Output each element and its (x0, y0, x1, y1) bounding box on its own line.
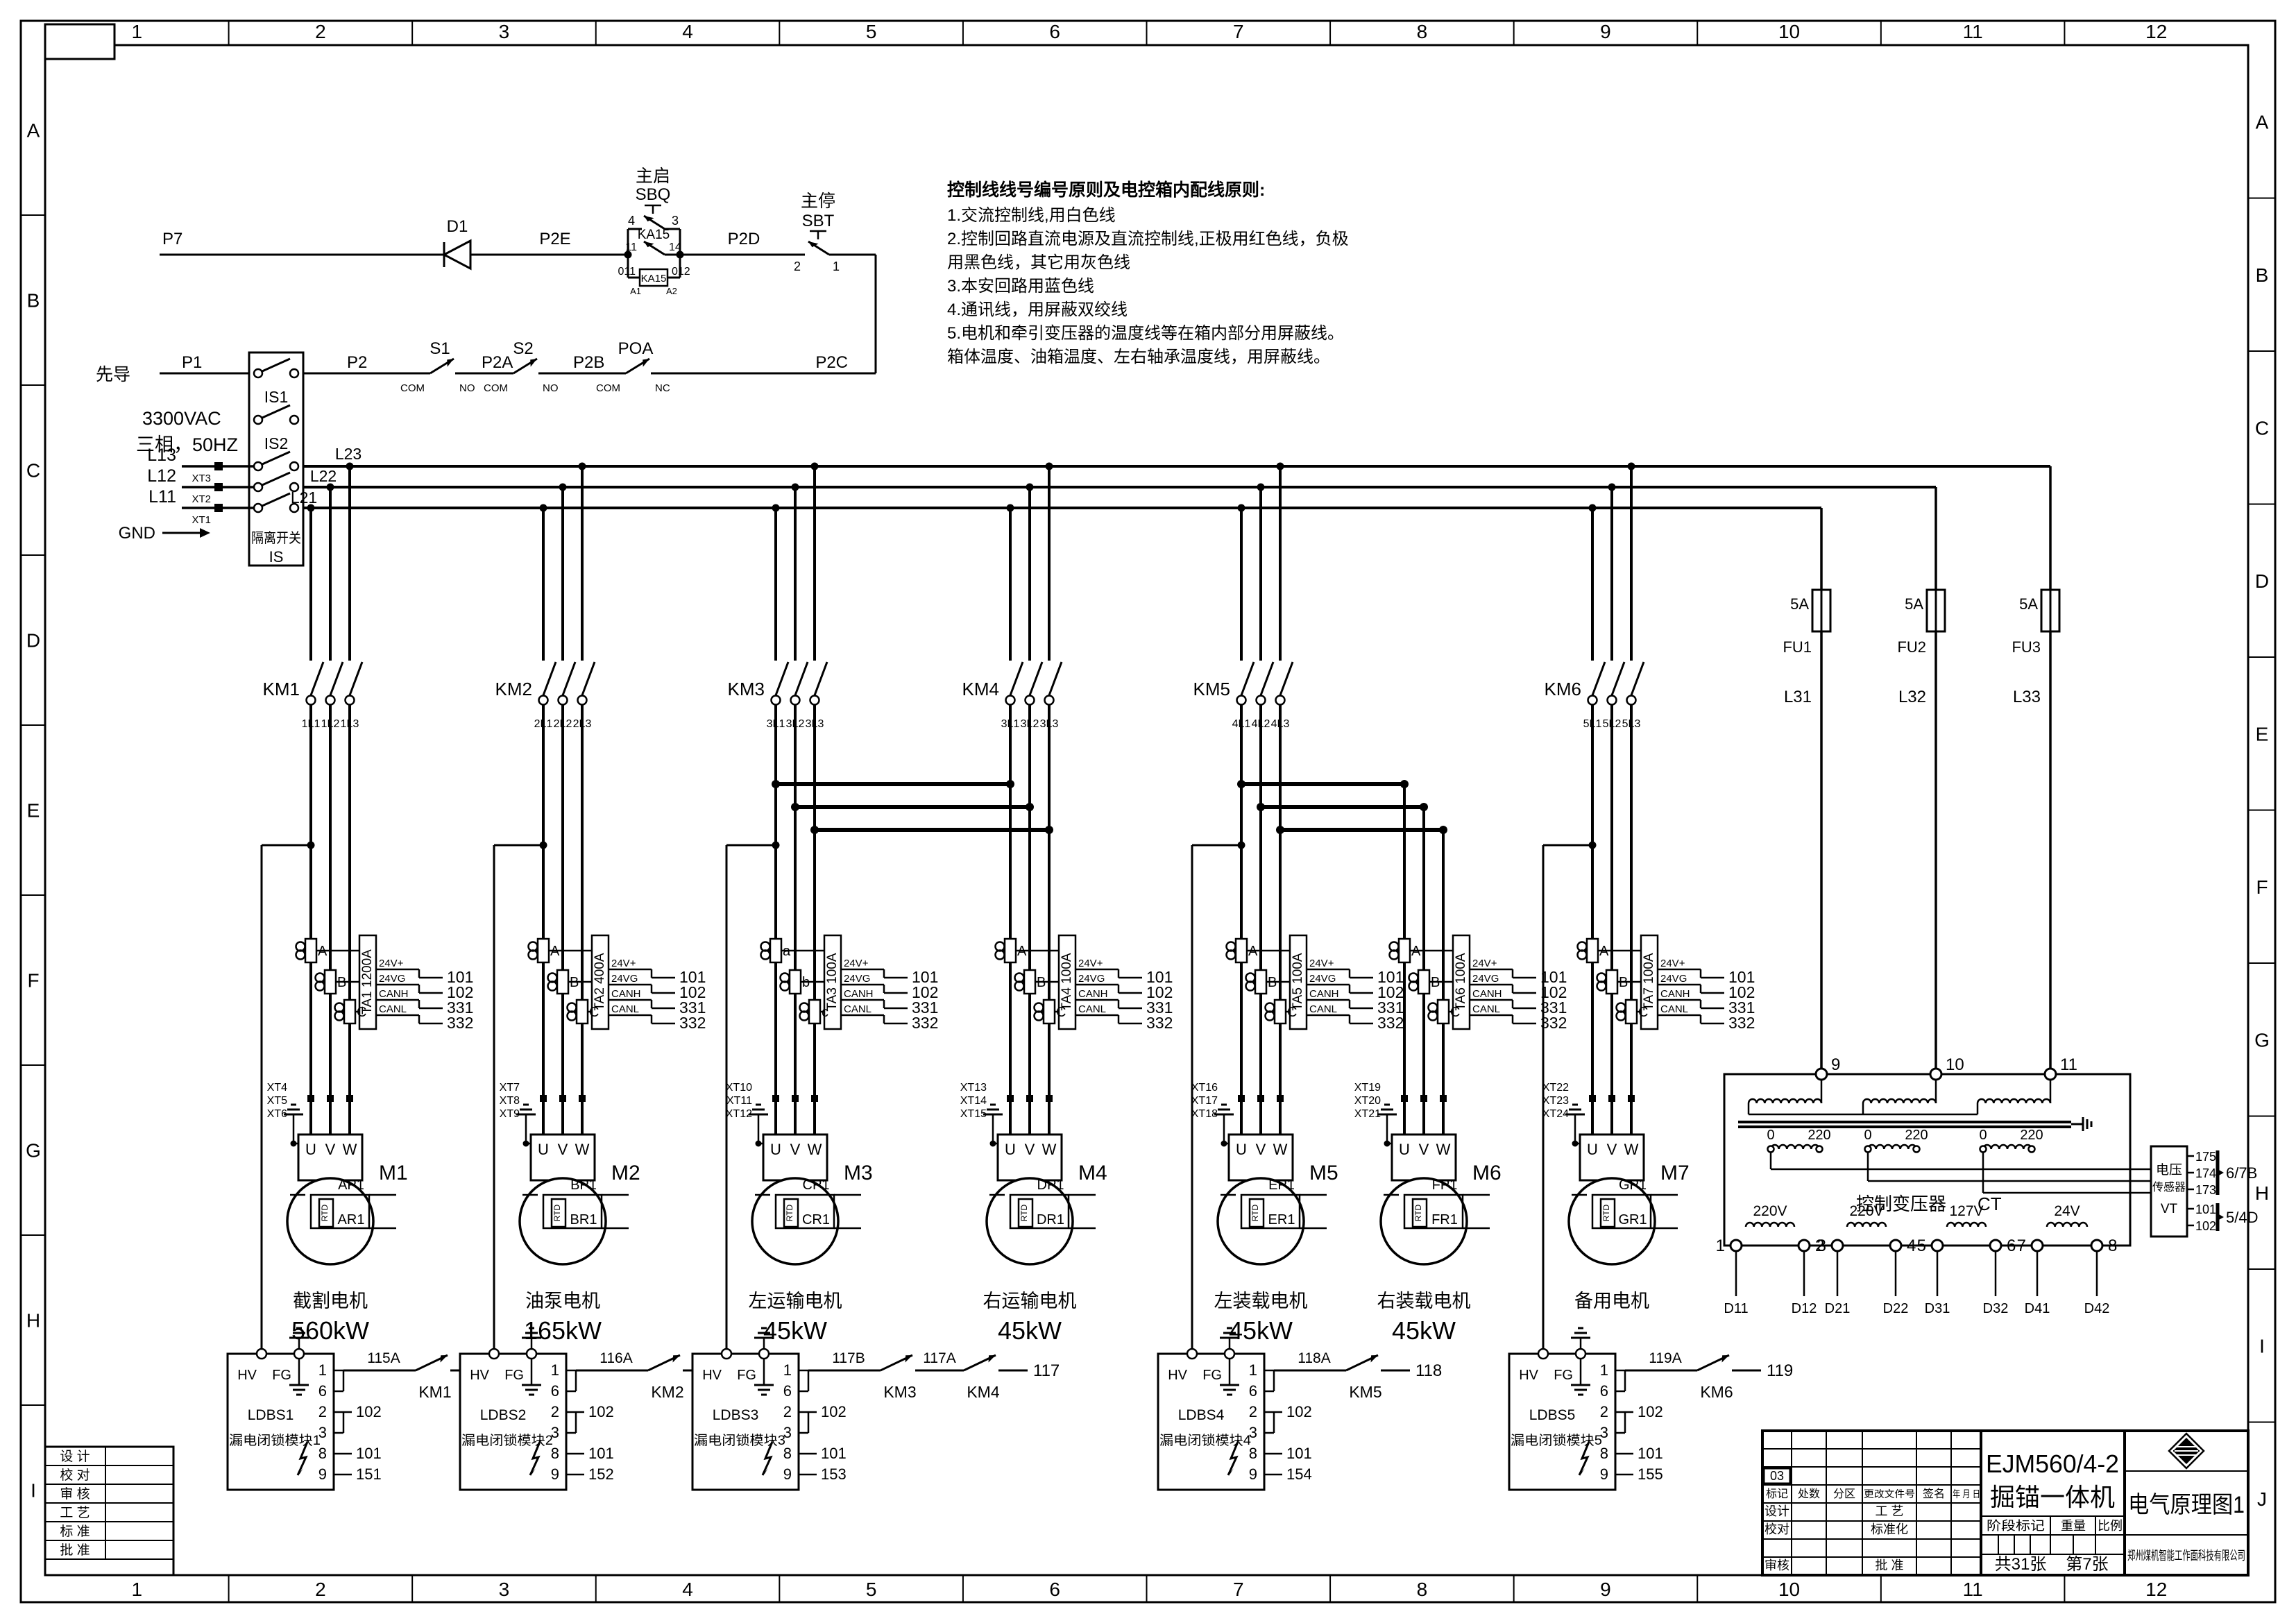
ct-out-wire: D41 (2025, 1301, 2050, 1316)
interlock-wire-in: 119A (1649, 1350, 1682, 1366)
ta-pin-label: 24V+ (1309, 958, 1334, 969)
ta-wire-label: 332 (1540, 1014, 1567, 1032)
ta-pin-label: 24VG (611, 973, 638, 985)
switch-id: POA (618, 339, 654, 358)
label-control-s1-r: NO (459, 382, 475, 394)
ta-label: TA6 100A (1454, 953, 1468, 1010)
label-control-iso-is1: IS1 (264, 388, 289, 406)
ldbs-pin-number: 3 (1600, 1424, 1608, 1441)
motor-winding-label: DP1 (1037, 1178, 1064, 1193)
toroid-label: b (802, 975, 810, 990)
ta-label: TA5 100A (1291, 953, 1305, 1010)
ldbs-pin-number: 6 (551, 1382, 559, 1400)
phase-wire-label: 3L2 (1021, 718, 1039, 730)
label-control-poa-r: NC (655, 382, 670, 394)
rtd-glyph-label: RTD (552, 1204, 562, 1221)
row-ref-left: H (26, 1310, 40, 1332)
phase-wire-label: 2L2 (554, 718, 572, 730)
supply-terminal-label: XT1 (192, 514, 211, 526)
label-control-ka15-wr: 012 (672, 266, 690, 278)
motor-winding-label: BP1 (570, 1178, 597, 1193)
product-name: 掘锚一体机 (1990, 1483, 2115, 1511)
interlock-wire-mid: 117A (923, 1350, 956, 1366)
xt-terminal-label: XT8 (500, 1095, 520, 1107)
label-control-iso-id: IS (269, 548, 284, 566)
phase-wire-label: 3L2 (786, 718, 805, 730)
ldbs-hv-label: HV (237, 1368, 257, 1383)
xt-terminal-label: XT21 (1354, 1108, 1381, 1120)
ldbs-pin-number: 2 (551, 1403, 559, 1420)
sheet-count: 共31张 (1995, 1555, 2047, 1574)
col-ref-top: 1 (132, 21, 143, 42)
motor-id: M1 (379, 1162, 408, 1184)
signature-row-label: 校 对 (60, 1468, 90, 1483)
ldbs-pin-number: 3 (318, 1424, 327, 1441)
ta-label: TA4 100A (1060, 953, 1074, 1010)
ldbs-pin-number: 6 (1249, 1382, 1257, 1400)
ct-tap-220: 220 (1905, 1128, 1928, 1143)
ldbs-pin-number: 1 (318, 1361, 327, 1379)
ldbs-pin-number: 2 (783, 1403, 792, 1420)
contactor-label: KM3 (728, 679, 765, 699)
label-title_block-h1: 标记 (1766, 1488, 1788, 1500)
label-title_block-weight: 重量 (2061, 1519, 2086, 1533)
vt-pin-label: 102 (2195, 1219, 2216, 1233)
notes-line: 箱体温度、油箱温度、左右轴承温度线，用屏蔽线。 (947, 348, 1330, 366)
motor-winding-label: EP1 (1268, 1178, 1295, 1193)
motor-winding-label: CP1 (803, 1178, 830, 1193)
label-control-sbq-id: SBQ (636, 185, 671, 204)
supply-phase: 三相，50HZ (136, 434, 238, 455)
row-ref-left: I (31, 1480, 36, 1502)
motor-terminal-uvw: W (1624, 1141, 1639, 1158)
label-title_block-r1l: 设计 (1764, 1504, 1789, 1518)
toroid-label: c (822, 1005, 828, 1020)
ldbs-pin-number: 9 (551, 1465, 559, 1483)
row-ref-left: E (27, 800, 40, 822)
supply-wire-label: L12 (147, 466, 176, 486)
label-control-ka15-ar: A2 (666, 286, 677, 296)
phase-wire-label: 3L1 (1001, 718, 1020, 730)
rtd-glyph-label: RTD (1019, 1204, 1029, 1221)
ta-pin-label: 24V+ (1472, 958, 1497, 969)
xt-terminal-label: XT15 (960, 1108, 987, 1120)
company-name: 郑州煤机智能工作面科技有限公司 (2127, 1549, 2245, 1563)
xt-terminal-label: XT14 (960, 1095, 987, 1107)
motor-id: M2 (611, 1162, 640, 1184)
interlock-km1: KM6 (1700, 1383, 1733, 1401)
ta-pin-label: 24V+ (379, 958, 404, 969)
ldbs-id: LDBS4 (1178, 1407, 1225, 1423)
label-control-s1-l: COM (400, 382, 425, 394)
fuse-rating: 5A (1790, 595, 1809, 613)
ta-pin-label: CANH (1078, 988, 1108, 1000)
xt-terminal-label: XT7 (500, 1082, 520, 1094)
ldbs-pin-number: 8 (1249, 1445, 1257, 1462)
ldbs-wire-101: 101 (821, 1445, 847, 1462)
ta-label: TA2 400A (593, 953, 607, 1010)
ldbs-wire-102: 102 (588, 1403, 614, 1420)
vt-pin-label: 175 (2195, 1150, 2216, 1164)
ct-out-wire: D22 (1883, 1301, 1909, 1316)
col-ref-top: 4 (682, 21, 693, 42)
motor-rtd-tag: BR1 (570, 1212, 597, 1227)
ct-top-terminal: 11 (2060, 1055, 2077, 1074)
contactor-label: KM5 (1193, 679, 1230, 699)
ta-label: TA3 100A (825, 953, 840, 1010)
motor-name: 左装载电机 (1214, 1291, 1308, 1311)
motor-power: 45kW (1229, 1316, 1293, 1345)
ta-wire-label: 332 (1377, 1014, 1404, 1032)
sbq-name: 主启 (636, 167, 670, 186)
ta-wire-label: 332 (679, 1014, 706, 1032)
fuse-rating: 5A (2019, 595, 2038, 613)
ct-tap-220: 220 (2020, 1128, 2043, 1143)
power-branch-2: KM22L12L22L3TA2 400AABC24V+10124VG102CAN… (494, 463, 706, 1354)
notes-line: 3.本安回路用蓝色线 (947, 277, 1094, 296)
ldbs-fg-label: FG (737, 1368, 756, 1383)
ldbs-pin-number: 6 (318, 1382, 327, 1400)
ct-out-wire: D12 (1792, 1301, 1817, 1316)
ldbs-wire-trip: 155 (1638, 1465, 1663, 1483)
ta-wire-label: 332 (1728, 1014, 1755, 1032)
motor-terminal-uvw: V (1256, 1141, 1266, 1158)
motor-power: 45kW (1392, 1316, 1456, 1345)
xt-terminal-label: XT12 (726, 1108, 752, 1120)
col-ref-top: 12 (2145, 21, 2167, 42)
ldbs-hv-label: HV (702, 1368, 722, 1383)
ldbs-pin-number: 9 (1600, 1465, 1608, 1483)
interlock-km1: KM1 (418, 1383, 451, 1401)
signature-row-label: 审 核 (60, 1486, 90, 1502)
label-control-buses-2: L21 (291, 488, 317, 507)
motor-name: 左运输电机 (749, 1291, 842, 1311)
ct-terminal-number: 7 (2017, 1237, 2026, 1255)
xt-terminal-label: XT23 (1542, 1095, 1569, 1107)
row-ref-left: C (26, 460, 40, 482)
label-title_block-r3r: 批 准 (1875, 1558, 1903, 1572)
signature-row-label: 标 准 (60, 1524, 90, 1539)
label-control-p2d: P2D (728, 230, 760, 248)
phase-wire-label: 4L2 (1252, 718, 1270, 730)
schematic-canvas: 112233445566778899101011111212ABCDEFGHIA… (0, 0, 2296, 1623)
ldbs-pin-number: 3 (783, 1424, 792, 1441)
ldbs-module-4: HVFGLDBS4漏电闭锁模块4162389102101154118AKM511… (1158, 1328, 1442, 1490)
rtd-glyph-label: RTD (1601, 1204, 1611, 1221)
label-control-s2-r: NO (543, 382, 559, 394)
motor-rtd-tag: FR1 (1431, 1212, 1458, 1227)
toroid-label: C (1056, 1005, 1066, 1020)
col-ref-top: 10 (1778, 21, 1800, 42)
ldbs-pin-number: 1 (551, 1361, 559, 1379)
phase-wire-label: 1L2 (321, 718, 340, 730)
phase-wire-label: 5L3 (1622, 718, 1641, 730)
motor-terminal-uvw: W (575, 1141, 590, 1158)
fuse-wire-label: L31 (1784, 688, 1812, 706)
toroid-label: A (1248, 944, 1258, 959)
label-control-p1: P1 (182, 353, 202, 372)
label-control-ka15-id: KA15 (638, 228, 670, 242)
supply-voltage: 3300VAC (142, 408, 221, 429)
label-title_block-scale: 比例 (2098, 1519, 2123, 1533)
label-title_block-r3l: 审核 (1764, 1558, 1789, 1572)
row-ref-left: B (27, 290, 40, 312)
toroid-label: A (1017, 944, 1027, 959)
motor-power: 165kW (524, 1316, 602, 1345)
col-ref-bottom: 6 (1049, 1579, 1060, 1600)
ta-pin-label: 24V+ (611, 958, 636, 969)
ct-out-wire: D11 (1724, 1301, 1748, 1316)
branch-pair-links (772, 780, 1447, 834)
motor-power: 45kW (998, 1316, 1062, 1345)
label-control-p2a: P2A (482, 353, 513, 372)
label-title_block-h2: 处数 (1798, 1488, 1820, 1500)
ldbs-pin-number: 8 (551, 1445, 559, 1462)
ct-terminal-number: 8 (2108, 1237, 2117, 1255)
voltage-sensor: 电压传感器VT1751741731011026/7B5/4D (2151, 1146, 2258, 1237)
phase-wire-label: 5L2 (1603, 718, 1622, 730)
ldbs-module-3: HVFGLDBS3漏电闭锁模块3162389102101153117BKM311… (692, 1328, 1060, 1490)
label-control-p2c: P2C (815, 353, 848, 372)
row-ref-left: G (26, 1140, 41, 1162)
power-branch-1: KM11L11L21L3TA1 1200AABC24V+10124VG102CA… (262, 463, 473, 1354)
xt-terminal-label: XT19 (1354, 1082, 1381, 1094)
col-ref-top: 7 (1233, 21, 1244, 42)
row-ref-right: A (2256, 111, 2269, 133)
motor-name: 右运输电机 (983, 1291, 1077, 1311)
row-ref-right: C (2255, 417, 2269, 439)
ta-pin-label: 24VG (844, 973, 870, 985)
power-branch-6: TA6 100AABC24V+10124VG102CANH331CANL332X… (1354, 784, 1567, 1345)
ta-pin-label: 24VG (1309, 973, 1336, 985)
col-ref-bottom: 11 (1963, 1579, 1983, 1600)
ta-pin-label: CANH (611, 988, 641, 1000)
notes-line: 用黑色线，其它用灰色线 (947, 253, 1130, 272)
col-ref-bottom: 3 (499, 1579, 510, 1600)
motor-power: 560kW (291, 1316, 369, 1345)
ta-pin-label: CANH (1660, 988, 1690, 1000)
ldbs-pin-number: 1 (783, 1361, 792, 1379)
ct-out-wire: D42 (2084, 1301, 2110, 1316)
interlock-km2: KM4 (967, 1383, 1000, 1401)
ct-winding-voltage: 127V (1949, 1203, 1983, 1219)
vt-group-2: 5/4D (2226, 1209, 2258, 1226)
rtd-glyph-label: RTD (320, 1204, 330, 1221)
diode-d1-label: D1 (447, 217, 468, 236)
label-title_block-h3: 分区 (1833, 1488, 1855, 1500)
ldbs-pin-number: 2 (1249, 1403, 1257, 1420)
label-control-p2b: P2B (573, 353, 604, 372)
row-ref-left: F (27, 970, 39, 992)
product-model: EJM560/4-2 (1986, 1450, 2119, 1478)
ct-winding-voltage: 24V (2054, 1203, 2080, 1219)
toroid-label: B (570, 975, 579, 990)
motor-terminal-uvw: U (1587, 1141, 1598, 1158)
row-ref-left: A (27, 120, 40, 142)
ta-pin-label: CANL (1472, 1003, 1500, 1015)
motor-terminal-uvw: U (1005, 1141, 1016, 1158)
motor-rtd-tag: CR1 (802, 1212, 830, 1227)
col-ref-top: 3 (499, 21, 510, 42)
toroid-label: B (337, 975, 346, 990)
ldbs-wire-102: 102 (1638, 1403, 1663, 1420)
fuse-id: FU3 (2012, 638, 2041, 656)
motor-rtd-tag: GR1 (1618, 1212, 1647, 1227)
ldbs-pin-number: 9 (783, 1465, 792, 1483)
motor-terminal-uvw: U (1399, 1141, 1410, 1158)
ct-winding-voltage: 220V (1849, 1203, 1883, 1219)
ldbs-wire-101: 101 (588, 1445, 614, 1462)
label-control-ka15-tl: 11 (625, 241, 637, 253)
notes-line: 5.电机和牵引变压器的温度线等在箱内部分用屏蔽线。 (947, 324, 1344, 343)
toroid-label: C (1287, 1005, 1297, 1020)
ct-tap-zero: 0 (1979, 1128, 1987, 1143)
toroid-label: C (589, 1005, 599, 1020)
ldbs-hv-label: HV (1519, 1368, 1538, 1383)
ta-pin-label: 24VG (379, 973, 405, 985)
ldbs-fg-label: FG (1202, 1368, 1222, 1383)
ta-pin-label: CANH (379, 988, 409, 1000)
rtd-glyph-label: RTD (1250, 1204, 1260, 1221)
ldbs-pin-number: 6 (1600, 1382, 1608, 1400)
phase-wire-label: 3L3 (1040, 718, 1059, 730)
vt-group-1: 6/7B (2226, 1164, 2257, 1182)
notes-line: 2.控制回路直流电源及直流控制线,正极用红色线，负极 (947, 230, 1349, 248)
phase-wire-label: 1L1 (302, 718, 321, 730)
interlock-wire-out: 118 (1415, 1361, 1442, 1380)
ldbs-wire-102: 102 (821, 1403, 847, 1420)
signature-row-label: 批 准 (60, 1543, 90, 1558)
toroid-label: A (550, 944, 560, 959)
row-ref-right: I (2259, 1335, 2265, 1357)
ct-top-terminal: 9 (1831, 1055, 1840, 1074)
supply-terminal-label: XT2 (192, 493, 211, 505)
ldbs-id: LDBS1 (248, 1407, 294, 1423)
ldbs-fg-label: FG (272, 1368, 291, 1383)
phase-wire-label: 4L1 (1232, 718, 1251, 730)
col-ref-bottom: 4 (682, 1579, 693, 1600)
fuse-id: FU2 (1897, 638, 1926, 656)
ldbs-wire-101: 101 (1638, 1445, 1663, 1462)
motor-terminal-uvw: W (808, 1141, 822, 1158)
interlock-km1: KM3 (883, 1383, 916, 1401)
motor-terminal-uvw: U (770, 1141, 781, 1158)
xt-terminal-label: XT11 (726, 1095, 752, 1107)
interlock-wire-in: 116A (599, 1350, 633, 1366)
label-control-iso-is2: IS2 (264, 434, 289, 452)
motor-name: 右装载电机 (1377, 1291, 1471, 1311)
ldbs-pin-number: 9 (1249, 1465, 1257, 1483)
fuse-wire-label: L33 (2013, 688, 2041, 706)
motor-terminal-uvw: U (1236, 1141, 1247, 1158)
label-control-ka15-wl: 011 (618, 266, 636, 278)
motor-terminal-uvw: U (538, 1141, 549, 1158)
phase-wire-label: 5L1 (1583, 718, 1602, 730)
rtd-glyph-label: RTD (785, 1204, 794, 1221)
row-ref-right: E (2256, 723, 2269, 745)
ta-pin-label: 24VG (1660, 973, 1687, 985)
ldbs-wire-102: 102 (356, 1403, 382, 1420)
ldbs-module-5: HVFGLDBS5漏电闭锁模块5162389102101155119AKM611… (1509, 1328, 1793, 1490)
signature-row-label: 设 计 (60, 1449, 90, 1464)
toroid-label: C (1638, 1005, 1648, 1020)
ldbs-fg-label: FG (1554, 1368, 1573, 1383)
xt-terminal-label: XT24 (1542, 1108, 1569, 1120)
row-ref-right: J (2257, 1488, 2267, 1510)
ldbs-pin-number: 8 (318, 1445, 327, 1462)
ldbs-wire-trip: 153 (821, 1465, 847, 1483)
toroid-label: A (1411, 944, 1421, 959)
notes-title: 控制线线号编号原则及电控箱内配线原则: (947, 180, 1265, 200)
control-transformer: 91011022002200220控制变压器CT220V12D11D12220V… (1716, 1055, 2151, 1316)
row-ref-right: G (2254, 1029, 2270, 1051)
ta-pin-label: 24V+ (1078, 958, 1103, 969)
vt-name-1: 电压 (2156, 1162, 2182, 1178)
ta-pin-label: CANH (1472, 988, 1502, 1000)
label-title_block-h6: 年 月 日 (1953, 1488, 1980, 1499)
vt-pin-label: 173 (2195, 1183, 2216, 1197)
motor-winding-label: AP1 (338, 1178, 364, 1193)
label-control-sbt-tl: 2 (794, 260, 801, 273)
ta-pin-label: CANL (1078, 1003, 1106, 1015)
toroid-label: A (1599, 944, 1609, 959)
label-title_block-h5: 签名 (1923, 1488, 1945, 1500)
col-ref-top: 2 (315, 21, 326, 42)
motor-terminal-uvw: V (1025, 1141, 1035, 1158)
ldbs-pin-number: 3 (551, 1424, 559, 1441)
ct-tap-zero: 0 (1767, 1128, 1774, 1143)
motor-terminal-uvw: V (325, 1141, 336, 1158)
toroid-label: B (1268, 975, 1277, 990)
ta-pin-label: CANL (379, 1003, 407, 1015)
ldbs-pin-number: 8 (783, 1445, 792, 1462)
ta-wire-label: 332 (1146, 1014, 1173, 1032)
motor-terminal-uvw: W (343, 1141, 357, 1158)
ta-pin-label: CANL (611, 1003, 639, 1015)
ct-terminal-number: 4 (1907, 1237, 1916, 1255)
motor-terminal-uvw: V (1607, 1141, 1617, 1158)
ta-pin-label: CANL (1660, 1003, 1688, 1015)
ldbs-pin-number: 9 (318, 1465, 327, 1483)
col-ref-top: 9 (1600, 21, 1611, 42)
col-ref-bottom: 12 (2145, 1579, 2167, 1600)
ldbs-wire-101: 101 (356, 1445, 382, 1462)
ldbs-pin-number: 2 (1600, 1403, 1608, 1420)
schematic-sheet: 112233445566778899101011111212ABCDEFGHIA… (0, 0, 2296, 1623)
ta-wire-label: 332 (912, 1014, 938, 1032)
label-title_block-stage: 阶段标记 (1987, 1519, 2045, 1533)
ldbs-hv-label: HV (1168, 1368, 1187, 1383)
power-branch-5: KM54L14L24L3TA5 100AABC24V+10124VG102CAN… (1191, 463, 1404, 1354)
contactor-label: KM2 (495, 679, 532, 699)
motor-name: 油泵电机 (525, 1291, 600, 1311)
col-ref-bottom: 9 (1600, 1579, 1611, 1600)
motor-terminal-uvw: W (1273, 1141, 1288, 1158)
interlock-wire-out: 117 (1033, 1361, 1060, 1380)
xt-terminal-label: XT4 (267, 1082, 287, 1094)
vt-name-2: 传感器 (2152, 1181, 2186, 1193)
ldbs-name: 漏电闭锁模块4 (1159, 1433, 1251, 1448)
ldbs-wire-trip: 151 (356, 1465, 382, 1483)
ldbs-pin-number: 1 (1600, 1361, 1608, 1379)
ta-pin-label: 24VG (1472, 973, 1499, 985)
rtd-glyph-label: RTD (1413, 1204, 1423, 1221)
ct-terminal-number: 6 (2007, 1237, 2016, 1255)
row-ref-left: D (26, 630, 40, 652)
ct-terminal-number: 3 (1817, 1237, 1826, 1255)
xt-terminal-label: XT22 (1542, 1082, 1569, 1094)
toroid-label: B (1619, 975, 1628, 990)
